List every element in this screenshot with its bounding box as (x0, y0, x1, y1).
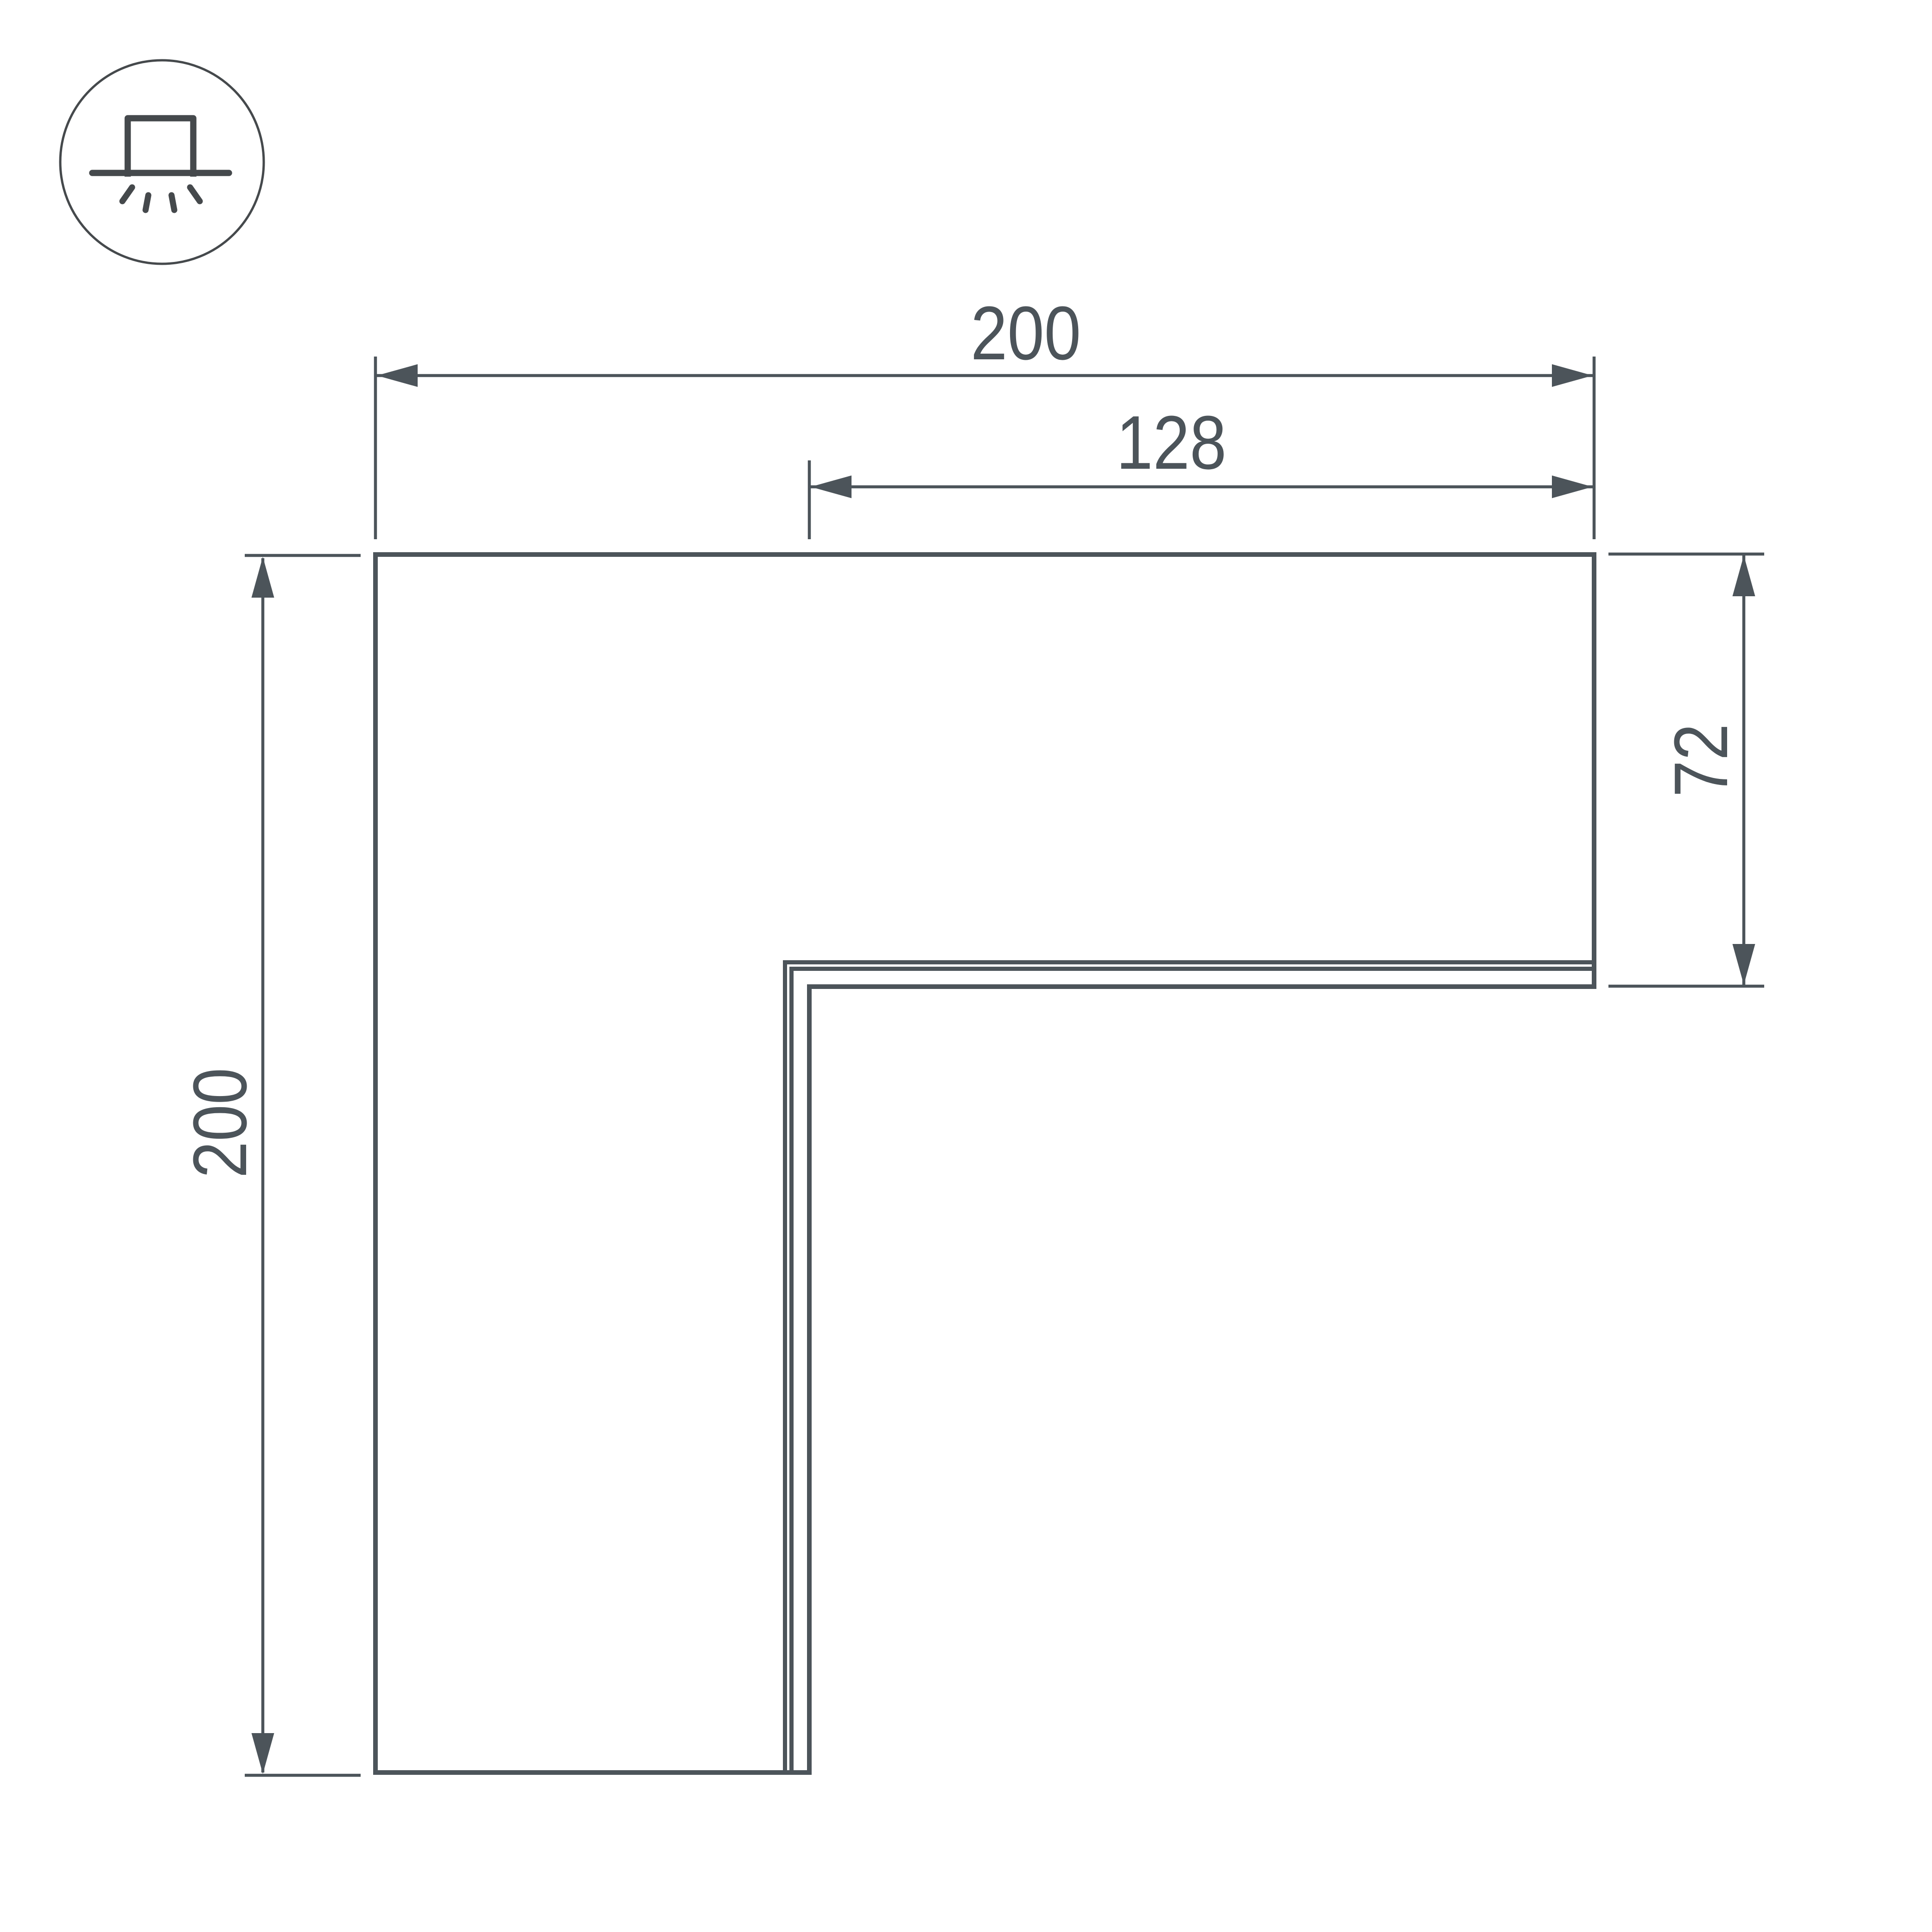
svg-text:200: 200 (178, 1068, 263, 1178)
svg-text:72: 72 (1659, 724, 1744, 797)
svg-text:128: 128 (1116, 400, 1227, 485)
svg-text:200: 200 (971, 291, 1081, 376)
